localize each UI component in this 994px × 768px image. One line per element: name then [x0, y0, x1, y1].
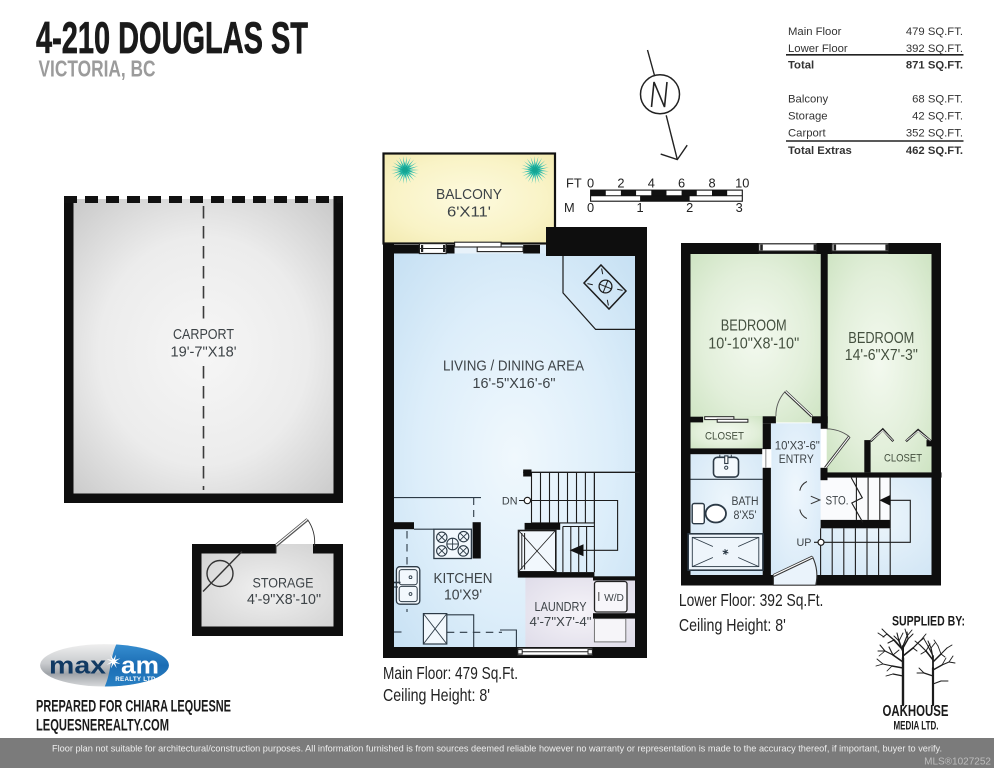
svg-text:MEDIA LTD.: MEDIA LTD. — [894, 721, 939, 733]
svg-text:Total: Total — [788, 60, 814, 72]
svg-text:MLS®1027252: MLS®1027252 — [924, 757, 991, 768]
svg-text:UP: UP — [797, 537, 812, 549]
svg-text:Main Floor: 479 Sq.Ft.: Main Floor: 479 Sq.Ft. — [383, 663, 518, 683]
svg-text:DN: DN — [502, 496, 518, 508]
svg-text:16'-5"X16'-6": 16'-5"X16'-6" — [473, 375, 556, 392]
svg-text:871 SQ.FT.: 871 SQ.FT. — [906, 60, 963, 72]
svg-text:LIVING / DINING AREA: LIVING / DINING AREA — [443, 358, 585, 375]
svg-text:VICTORIA, BC: VICTORIA, BC — [39, 56, 156, 82]
svg-text:STO.: STO. — [826, 494, 849, 508]
svg-text:479 SQ.FT.: 479 SQ.FT. — [906, 26, 963, 38]
svg-text:6'X11': 6'X11' — [447, 204, 491, 221]
svg-text:Floor plan not suitable for ar: Floor plan not suitable for architectura… — [52, 744, 942, 754]
svg-text:6: 6 — [678, 176, 685, 191]
svg-text:ENTRY: ENTRY — [779, 452, 814, 466]
svg-text:8: 8 — [708, 176, 715, 191]
svg-text:14'-6"X7'-3": 14'-6"X7'-3" — [845, 347, 918, 364]
svg-text:19'-7"X18': 19'-7"X18' — [171, 344, 237, 361]
svg-text:8'X5': 8'X5' — [734, 508, 757, 522]
svg-text:392 SQ.FT.: 392 SQ.FT. — [906, 43, 963, 55]
svg-text:Lower Floor: 392 Sq.Ft.: Lower Floor: 392 Sq.Ft. — [679, 590, 824, 610]
svg-text:Balcony: Balcony — [788, 94, 829, 106]
svg-text:10'X9': 10'X9' — [444, 588, 482, 604]
svg-text:68 SQ.FT.: 68 SQ.FT. — [912, 94, 963, 106]
svg-text:Ceiling Height: 8': Ceiling Height: 8' — [679, 615, 786, 635]
svg-text:2: 2 — [617, 176, 624, 191]
svg-text:10'X3'-6": 10'X3'-6" — [775, 439, 820, 453]
svg-text:462 SQ.FT.: 462 SQ.FT. — [906, 145, 963, 157]
svg-text:CARPORT: CARPORT — [173, 326, 234, 343]
svg-text:STORAGE: STORAGE — [253, 576, 314, 591]
svg-text:4'-7"X7'-4": 4'-7"X7'-4" — [530, 615, 592, 629]
svg-text:Lower Floor: Lower Floor — [788, 43, 848, 55]
svg-text:KITCHEN: KITCHEN — [434, 571, 493, 587]
svg-text:10: 10 — [735, 176, 749, 191]
svg-text:PREPARED FOR CHIARA LEQUESNE: PREPARED FOR CHIARA LEQUESNE — [36, 698, 231, 716]
svg-text:10'-10"X8'-10": 10'-10"X8'-10" — [708, 336, 799, 353]
svg-text:BATH: BATH — [732, 494, 759, 508]
svg-text:SUPPLIED BY:: SUPPLIED BY: — [892, 613, 965, 629]
svg-text:CLOSET: CLOSET — [884, 453, 922, 465]
svg-text:BEDROOM: BEDROOM — [848, 330, 914, 347]
svg-text:Main Floor: Main Floor — [788, 26, 842, 38]
svg-text:Storage: Storage — [788, 111, 828, 123]
svg-text:4'-9"X8'-10": 4'-9"X8'-10" — [247, 592, 321, 608]
svg-text:FT: FT — [566, 176, 582, 191]
svg-text:REALTY LTD: REALTY LTD — [115, 676, 156, 683]
svg-text:0: 0 — [587, 176, 594, 191]
svg-text:OAKHOUSE: OAKHOUSE — [883, 703, 949, 720]
svg-text:Carport: Carport — [788, 128, 827, 140]
svg-text:BALCONY: BALCONY — [436, 186, 502, 203]
svg-text:Total Extras: Total Extras — [788, 145, 852, 157]
svg-text:LEQUESNEREALTY.COM: LEQUESNEREALTY.COM — [36, 717, 169, 735]
svg-text:CLOSET: CLOSET — [705, 431, 744, 443]
svg-text:2: 2 — [686, 200, 693, 215]
svg-text:W/D: W/D — [604, 593, 624, 604]
svg-text:Ceiling Height: 8': Ceiling Height: 8' — [383, 685, 490, 705]
svg-text:1: 1 — [637, 200, 644, 215]
svg-text:3: 3 — [736, 200, 743, 215]
svg-text:BEDROOM: BEDROOM — [721, 318, 787, 335]
svg-text:4: 4 — [648, 176, 655, 191]
svg-text:max: max — [49, 653, 106, 680]
svg-text:42 SQ.FT.: 42 SQ.FT. — [912, 111, 963, 123]
svg-text:LAUNDRY: LAUNDRY — [535, 599, 587, 614]
svg-text:0: 0 — [587, 200, 594, 215]
svg-text:M: M — [564, 200, 575, 215]
svg-text:352 SQ.FT.: 352 SQ.FT. — [906, 128, 963, 140]
